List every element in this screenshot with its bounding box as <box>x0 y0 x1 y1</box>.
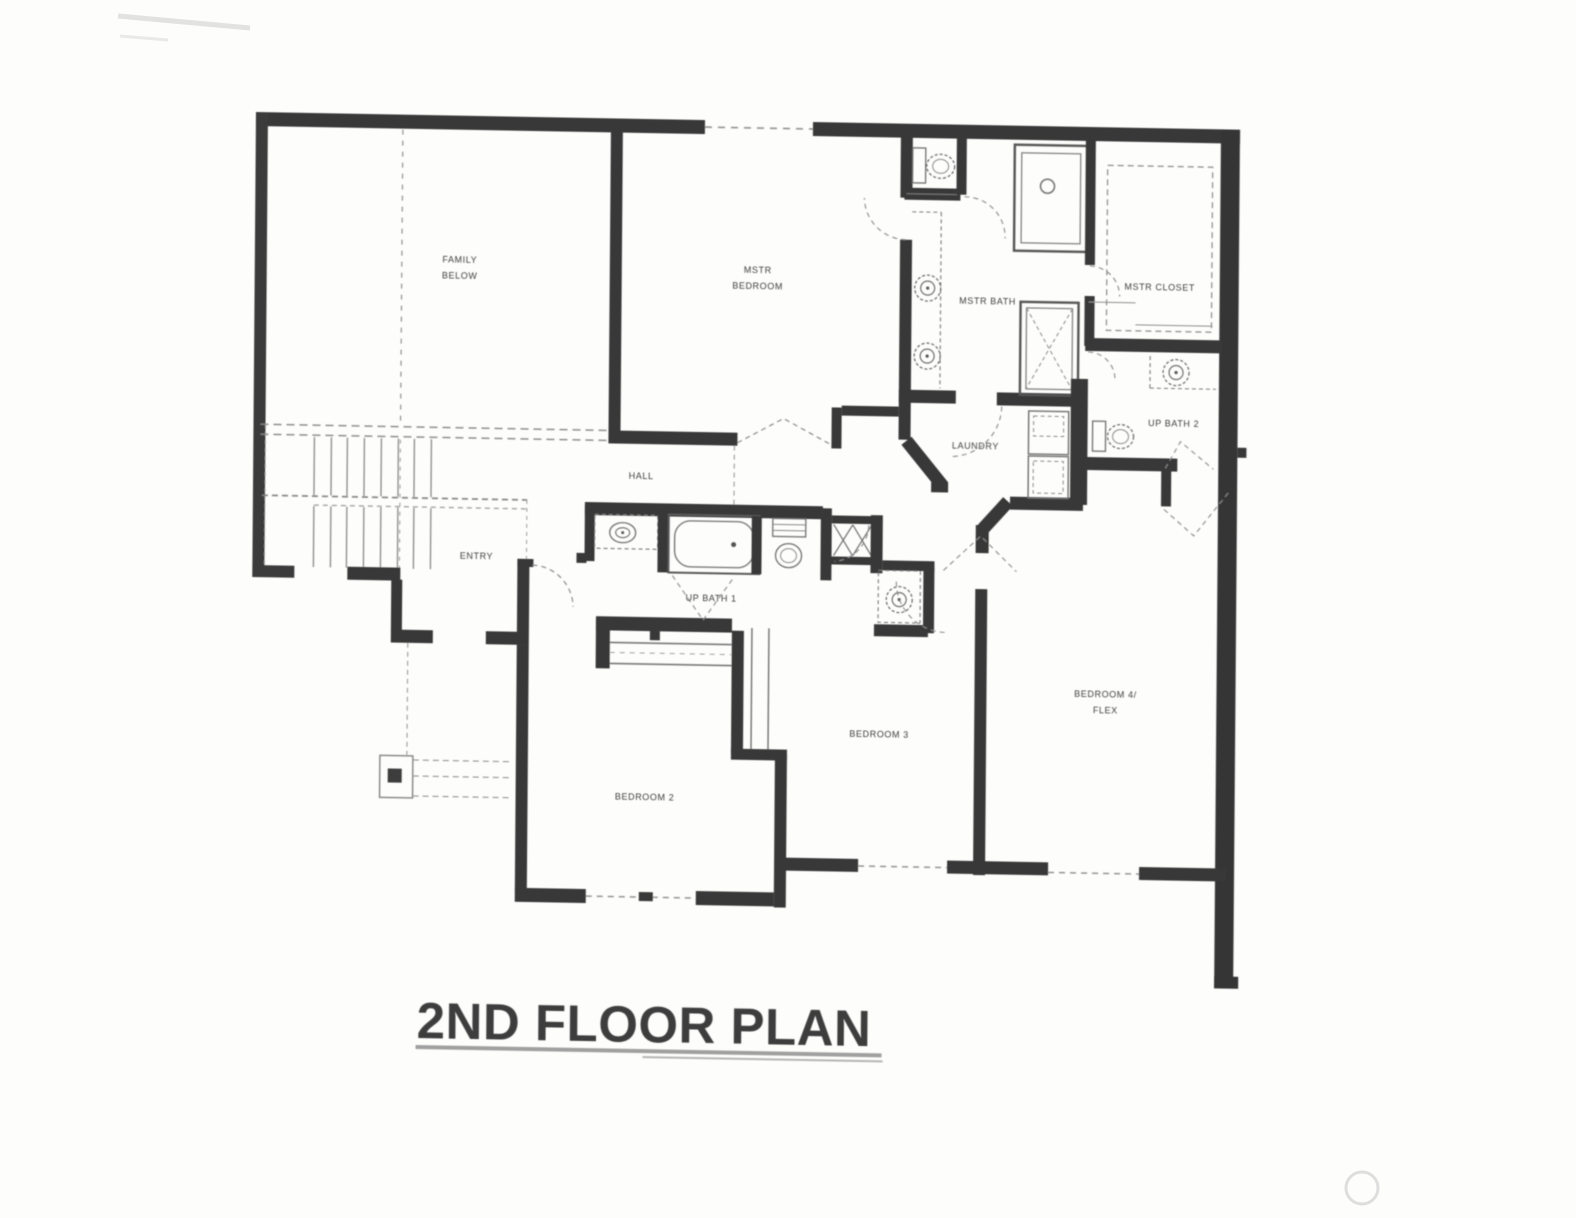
svg-text:UP BATH 1: UP BATH 1 <box>686 593 737 604</box>
svg-text:BEDROOM: BEDROOM <box>732 281 783 292</box>
svg-text:FAMILY: FAMILY <box>442 254 477 265</box>
svg-text:BEDROOM 3: BEDROOM 3 <box>849 729 908 740</box>
svg-text:UP BATH 2: UP BATH 2 <box>1148 418 1199 429</box>
svg-text:HALL: HALL <box>629 471 654 481</box>
svg-text:MSTR CLOSET: MSTR CLOSET <box>1124 282 1195 293</box>
svg-text:BEDROOM 2: BEDROOM 2 <box>615 792 674 803</box>
svg-text:MSTR BATH: MSTR BATH <box>959 296 1016 307</box>
svg-text:MSTR: MSTR <box>744 265 772 276</box>
svg-text:BEDROOM 4/: BEDROOM 4/ <box>1074 689 1137 700</box>
svg-text:ENTRY: ENTRY <box>460 551 493 562</box>
svg-text:FLEX: FLEX <box>1093 705 1118 715</box>
svg-text:BELOW: BELOW <box>442 270 478 281</box>
svg-text:LAUNDRY: LAUNDRY <box>952 441 999 452</box>
